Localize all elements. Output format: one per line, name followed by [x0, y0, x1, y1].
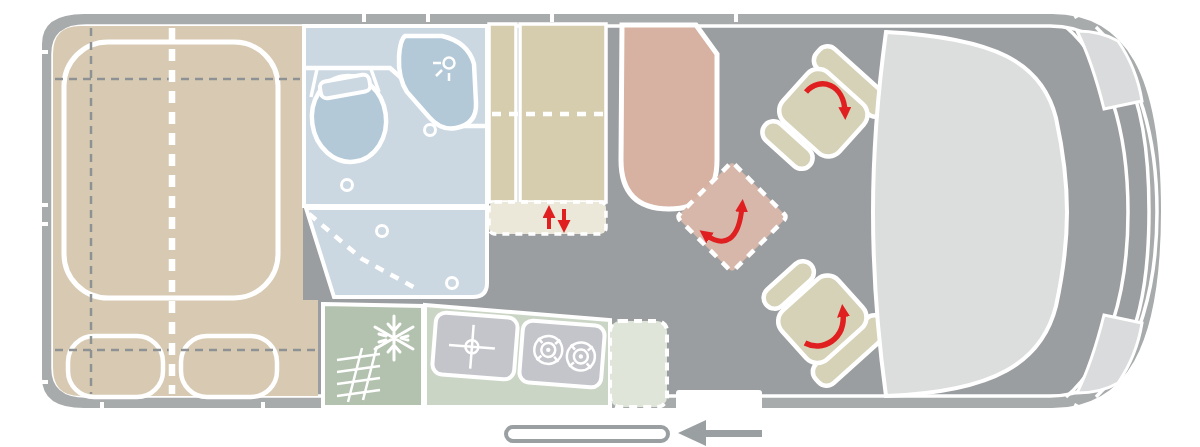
entry-step — [676, 390, 762, 412]
hob — [519, 320, 606, 388]
dashboard — [873, 32, 1067, 396]
rear-bed — [53, 26, 318, 397]
floorplan-canvas — [0, 0, 1200, 447]
sink — [432, 312, 519, 380]
bathroom — [304, 26, 487, 297]
campervan-floorplan — [0, 0, 1200, 447]
counter-extension-flap — [610, 321, 667, 407]
wardrobe — [489, 24, 606, 234]
bathroom-anteroom — [306, 208, 487, 297]
door-arrow-icon — [678, 420, 762, 446]
dinette-table — [621, 25, 717, 209]
sliding-door-rail — [506, 427, 668, 441]
